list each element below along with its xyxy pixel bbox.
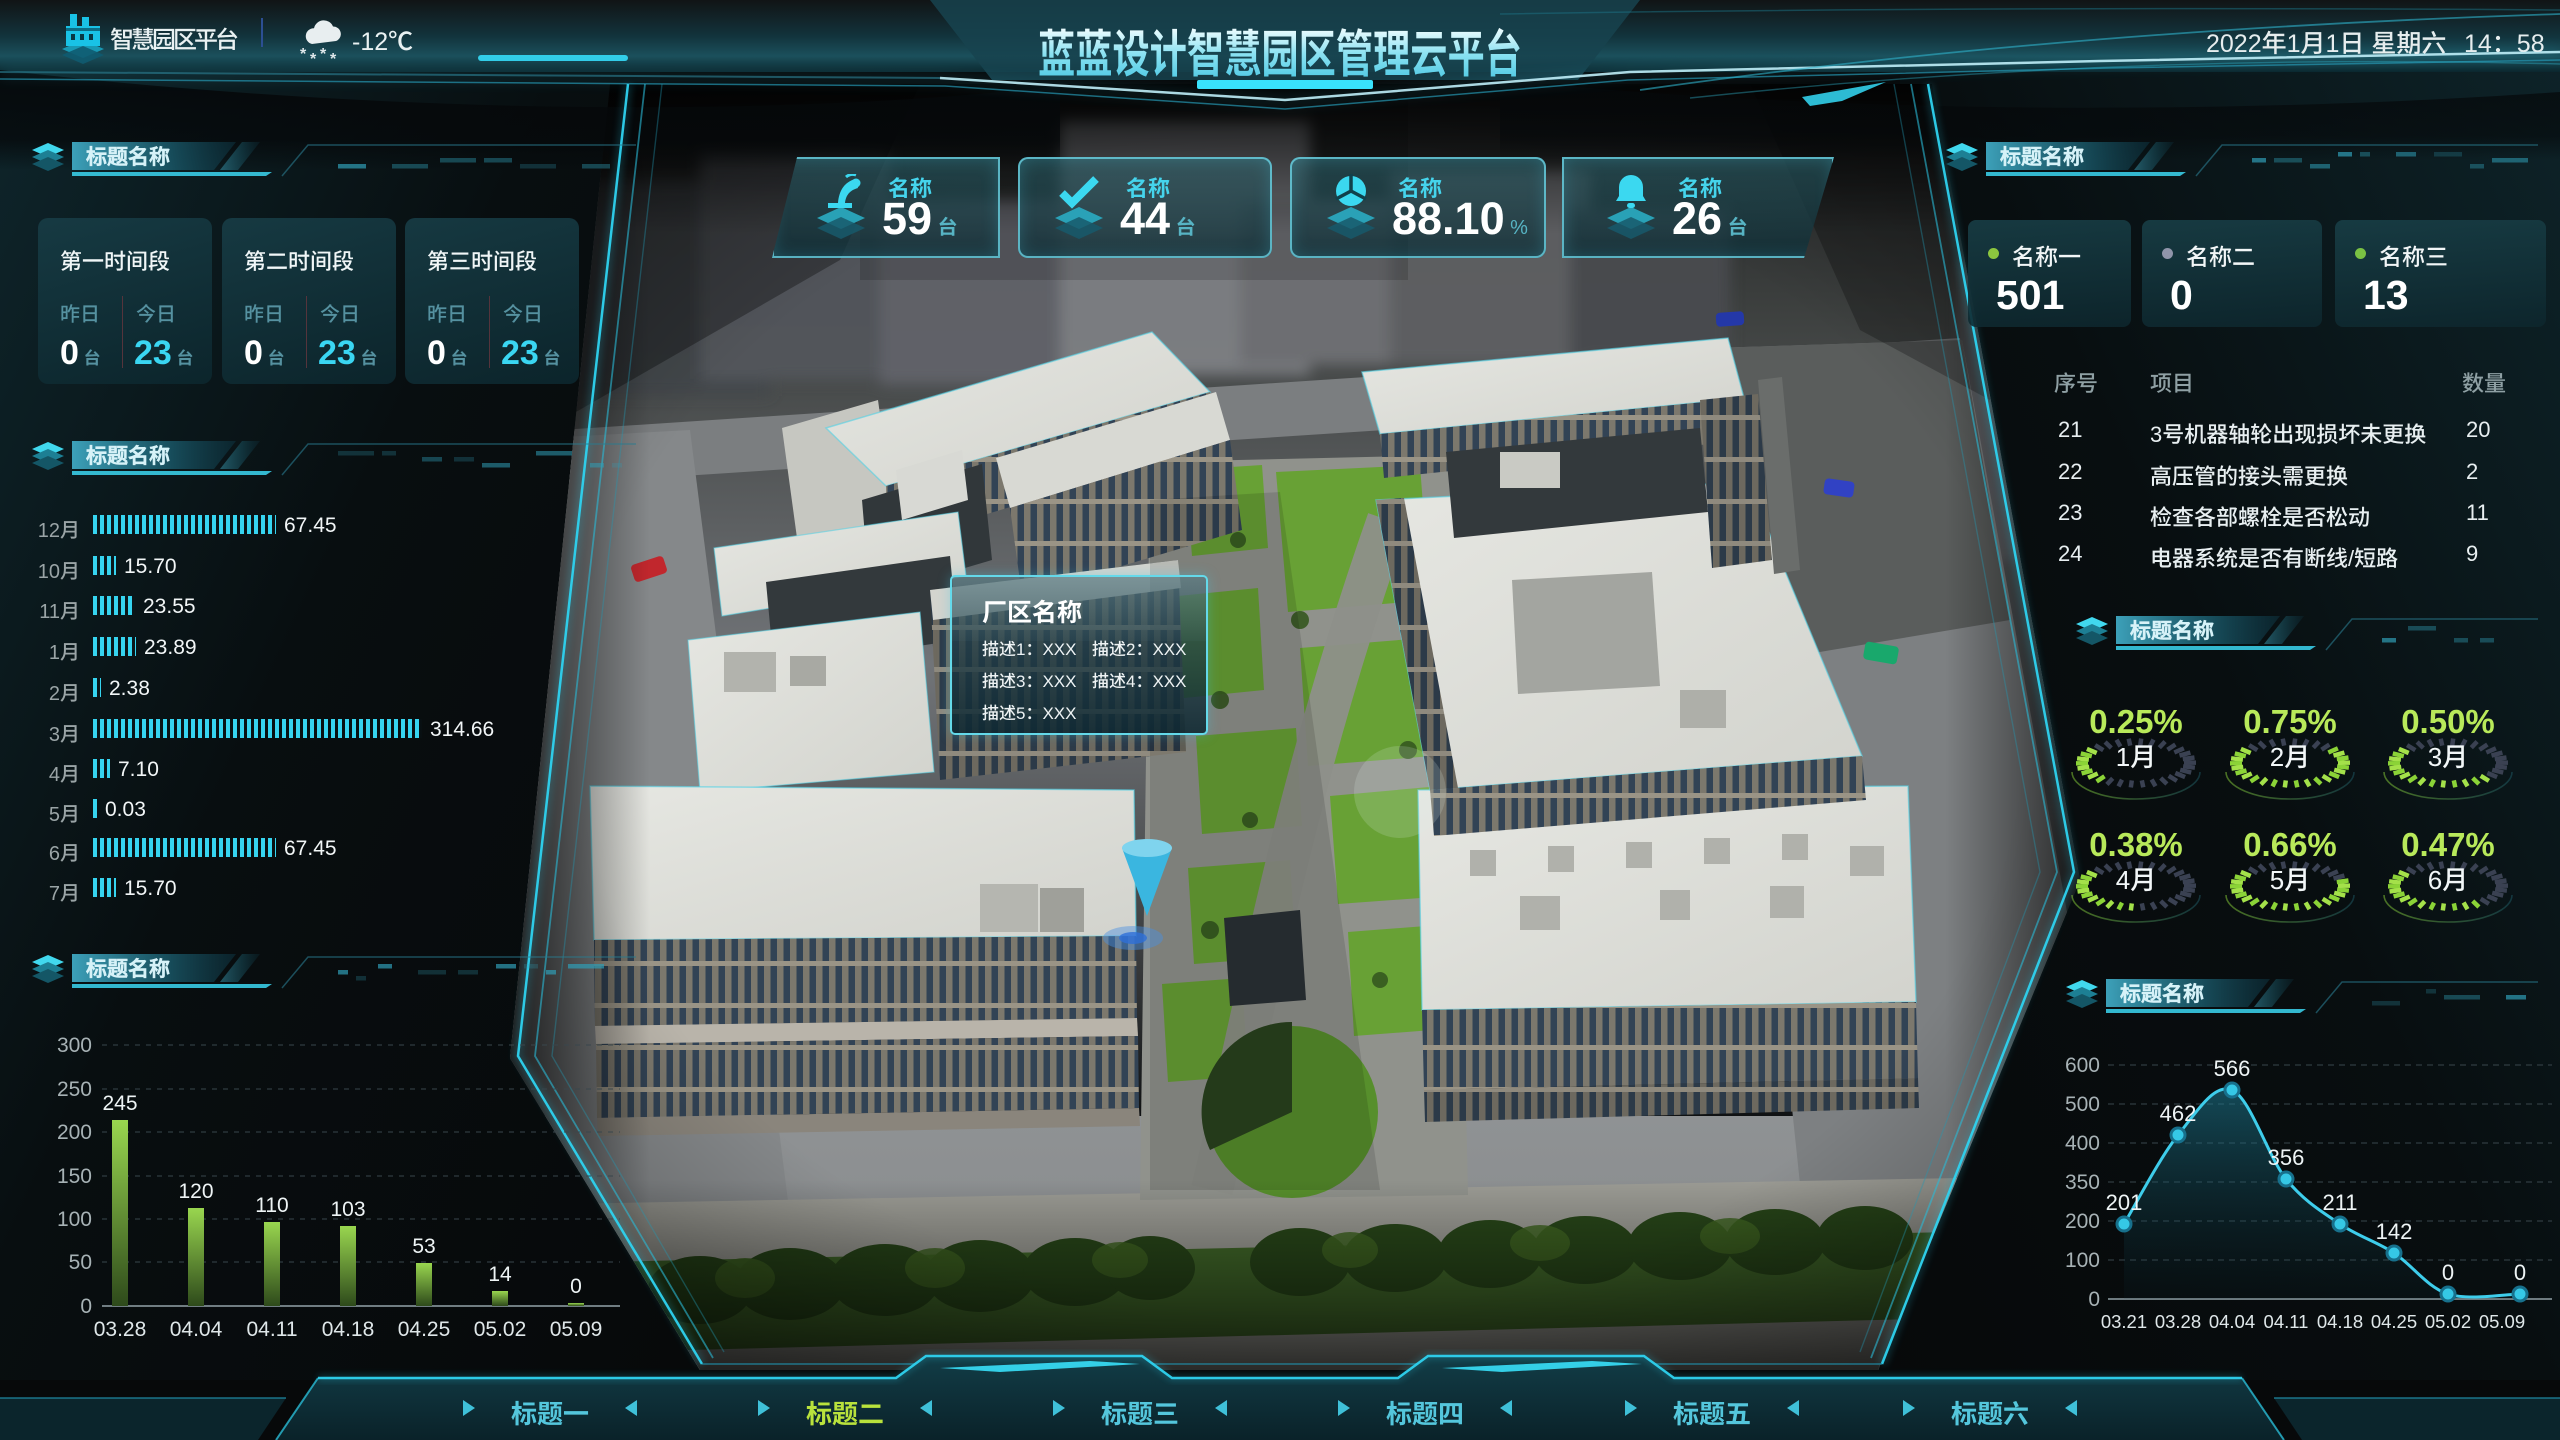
svg-text:100: 100 bbox=[57, 1208, 92, 1231]
svg-text:211: 211 bbox=[2322, 1190, 2357, 1215]
svg-text:04.18: 04.18 bbox=[322, 1318, 375, 1341]
svg-text:0: 0 bbox=[2442, 1260, 2454, 1285]
svg-text:14: 14 bbox=[488, 1263, 512, 1286]
svg-text:250: 250 bbox=[57, 1078, 92, 1101]
svg-text:0: 0 bbox=[2514, 1260, 2526, 1285]
svg-text:03.21: 03.21 bbox=[2101, 1311, 2147, 1332]
svg-text:04.11: 04.11 bbox=[2264, 1311, 2309, 1332]
svg-text:0: 0 bbox=[80, 1295, 92, 1318]
svg-text:0: 0 bbox=[2088, 1288, 2100, 1311]
svg-text:04.11: 04.11 bbox=[247, 1318, 298, 1341]
svg-text:05.02: 05.02 bbox=[2425, 1311, 2471, 1332]
svg-text:0: 0 bbox=[570, 1275, 582, 1298]
svg-text:300: 300 bbox=[57, 1034, 92, 1057]
svg-text:0.66%: 0.66% bbox=[2243, 826, 2337, 863]
svg-text:05.09: 05.09 bbox=[550, 1318, 603, 1341]
svg-text:标题名称: 标题名称 bbox=[85, 957, 170, 981]
svg-text:1月: 1月 bbox=[2116, 742, 2156, 772]
svg-text:04.25: 04.25 bbox=[2371, 1311, 2417, 1332]
svg-text:*: * bbox=[330, 51, 337, 62]
svg-text:标题名称: 标题名称 bbox=[1999, 145, 2084, 169]
svg-text:200: 200 bbox=[57, 1121, 92, 1144]
svg-text:245: 245 bbox=[102, 1092, 137, 1115]
svg-text:600: 600 bbox=[2065, 1054, 2100, 1077]
svg-text:0.38%: 0.38% bbox=[2089, 826, 2183, 863]
svg-text:200: 200 bbox=[2065, 1210, 2100, 1233]
svg-text:标题名称: 标题名称 bbox=[2119, 982, 2204, 1006]
svg-text:462: 462 bbox=[2160, 1101, 2197, 1126]
svg-text:110: 110 bbox=[255, 1194, 288, 1217]
svg-text:3月: 3月 bbox=[2428, 742, 2468, 772]
svg-text:标题名称: 标题名称 bbox=[2129, 619, 2214, 643]
svg-text:05.09: 05.09 bbox=[2479, 1311, 2525, 1332]
svg-text:04.18: 04.18 bbox=[2317, 1311, 2363, 1332]
svg-text:2月: 2月 bbox=[2270, 742, 2310, 772]
svg-text:356: 356 bbox=[2268, 1145, 2305, 1170]
svg-text:03.28: 03.28 bbox=[94, 1318, 147, 1341]
svg-text:201: 201 bbox=[2106, 1190, 2143, 1215]
svg-text:标题名称: 标题名称 bbox=[85, 444, 170, 468]
svg-text:0.25%: 0.25% bbox=[2089, 703, 2183, 740]
svg-text:标题名称: 标题名称 bbox=[85, 145, 170, 169]
svg-text:5月: 5月 bbox=[2270, 865, 2310, 895]
svg-text:566: 566 bbox=[2214, 1056, 2251, 1081]
svg-text:53: 53 bbox=[412, 1235, 435, 1258]
svg-text:50: 50 bbox=[69, 1251, 92, 1274]
svg-text:*: * bbox=[310, 51, 317, 62]
svg-text:500: 500 bbox=[2065, 1093, 2100, 1116]
svg-text:4月: 4月 bbox=[2116, 865, 2156, 895]
svg-text:*: * bbox=[320, 46, 327, 62]
svg-text:04.04: 04.04 bbox=[170, 1318, 223, 1341]
svg-text:0.50%: 0.50% bbox=[2401, 703, 2495, 740]
svg-text:6月: 6月 bbox=[2428, 865, 2468, 895]
svg-text:142: 142 bbox=[2376, 1219, 2413, 1244]
svg-text:0.75%: 0.75% bbox=[2243, 703, 2337, 740]
svg-text:05.02: 05.02 bbox=[474, 1318, 527, 1341]
svg-text:120: 120 bbox=[178, 1180, 213, 1203]
svg-text:04.25: 04.25 bbox=[398, 1318, 451, 1341]
svg-text:0.47%: 0.47% bbox=[2401, 826, 2495, 863]
svg-text:04.04: 04.04 bbox=[2209, 1311, 2255, 1332]
svg-text:350: 350 bbox=[2065, 1171, 2100, 1194]
svg-text:03.28: 03.28 bbox=[2155, 1311, 2201, 1332]
svg-text:*: * bbox=[300, 46, 307, 62]
svg-text:150: 150 bbox=[57, 1165, 92, 1188]
svg-text:100: 100 bbox=[2065, 1249, 2100, 1272]
svg-text:103: 103 bbox=[330, 1198, 365, 1221]
svg-text:400: 400 bbox=[2065, 1132, 2100, 1155]
